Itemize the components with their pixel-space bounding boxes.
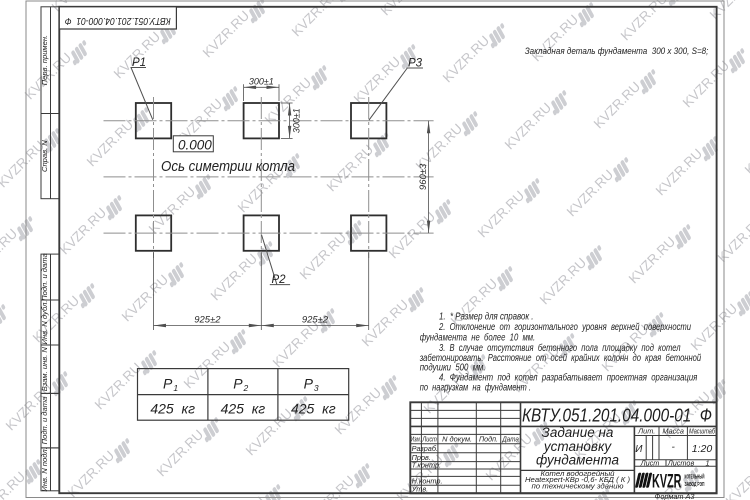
svg-text:KVZR.RU: KVZR.RU — [742, 125, 750, 178]
svg-text:KVZR.RU: KVZR.RU — [84, 117, 137, 170]
svg-text:425 кг: 425 кг — [221, 401, 266, 417]
svg-text:Взам. инв. N: Взам. инв. N — [40, 347, 49, 392]
svg-text:KVZR.RU: KVZR.RU — [208, 251, 261, 304]
svg-text:P2: P2 — [272, 274, 287, 286]
svg-text:KVZR.RU: KVZR.RU — [502, 100, 555, 153]
svg-text:-: - — [672, 442, 676, 453]
svg-text:KVZR.RU: KVZR.RU — [0, 469, 28, 500]
svg-text:P1: P1 — [132, 57, 146, 69]
svg-text:Закладная деталь фундамента 3: Закладная деталь фундамента 300 x 300, S… — [525, 46, 709, 57]
svg-text:P: P — [304, 376, 314, 392]
svg-text:Лист: Лист — [422, 435, 437, 444]
svg-text:Подп. и дата: Подп. и дата — [40, 397, 49, 445]
svg-text:0.000: 0.000 — [178, 137, 212, 152]
svg-text:925±2: 925±2 — [302, 315, 329, 326]
svg-text:Формат А3: Формат А3 — [655, 492, 695, 500]
svg-text:КВТУ.051.201.04.000-01 Ф: КВТУ.051.201.04.000-01 Ф — [65, 15, 171, 27]
svg-text:1:20: 1:20 — [692, 443, 713, 455]
svg-text:KVZR.RU: KVZR.RU — [181, 339, 234, 392]
svg-text:KVZR.RU: KVZR.RU — [200, 8, 253, 61]
svg-text:KVZR.RU: KVZR.RU — [154, 427, 207, 480]
svg-text:Ось симетрии котла: Ось симетрии котла — [161, 159, 295, 175]
svg-text:Утв.: Утв. — [411, 484, 429, 493]
svg-text:KVZR.RU: KVZR.RU — [0, 0, 12, 35]
svg-text:KVZR.RU: KVZR.RU — [564, 167, 617, 220]
svg-text:KVZR.RU: KVZR.RU — [30, 293, 83, 346]
svg-text:KVZR.RU: KVZR.RU — [723, 456, 750, 500]
svg-text:KVZR.RU: KVZR.RU — [591, 79, 644, 132]
svg-text:КВТУ.051.201.04.000-01 Ф: КВТУ.051.201.04.000-01 Ф — [522, 405, 712, 426]
svg-text:KVZR.RU: KVZR.RU — [92, 360, 145, 413]
svg-text:KVZR.RU: KVZR.RU — [378, 0, 431, 18]
svg-text:KVZR.RU: KVZR.RU — [65, 448, 118, 500]
svg-text:300±1: 300±1 — [249, 77, 274, 87]
svg-text:KVZR.RU: KVZR.RU — [386, 209, 439, 262]
svg-text:Подп.: Подп. — [479, 435, 498, 444]
svg-text:P3: P3 — [408, 58, 423, 70]
svg-text:KVZR.RU: KVZR.RU — [653, 146, 706, 199]
svg-text:KVZR.RU: KVZR.RU — [475, 188, 528, 241]
svg-text:KVZR.RU: KVZR.RU — [305, 473, 358, 500]
svg-text:KVZR.RU: KVZR.RU — [688, 301, 741, 354]
svg-text:425 кг: 425 кг — [150, 401, 195, 417]
svg-text:фундамента: фундамента — [536, 453, 619, 468]
svg-text:KVZR.RU: KVZR.RU — [332, 385, 385, 438]
svg-text:Лит.: Лит. — [637, 426, 655, 435]
svg-text:KVZR.RU: KVZR.RU — [119, 272, 172, 325]
svg-text:KVZR.RU: KVZR.RU — [440, 33, 493, 86]
svg-text:Перв. примен.: Перв. примен. — [40, 35, 49, 85]
svg-text:ЗАВОД РЭП: ЗАВОД РЭП — [685, 482, 705, 488]
svg-text:3: 3 — [314, 383, 319, 393]
svg-text:N докум.: N докум. — [442, 435, 472, 444]
svg-text:И: И — [635, 444, 643, 455]
svg-text:Т.контр.: Т.контр. — [412, 460, 441, 469]
svg-text:KVZR.RU: KVZR.RU — [537, 255, 590, 308]
svg-text:1: 1 — [173, 383, 178, 393]
svg-text:фундамента не более 10 мм.: фундамента не более 10 мм. — [420, 332, 536, 344]
svg-text:P: P — [233, 376, 243, 392]
svg-text:Инв. N подл.: Инв. N подл. — [40, 447, 49, 491]
svg-text:по техническому зданию: по техническому зданию — [532, 482, 624, 491]
svg-text:1: 1 — [705, 458, 709, 467]
svg-text:KVZR.RU: KVZR.RU — [707, 0, 750, 22]
svg-text:Масса: Масса — [662, 426, 684, 435]
svg-text:1. * Размер для справок .: 1. * Размер для справок . — [439, 311, 534, 322]
svg-text:KVZR.RU: KVZR.RU — [111, 29, 164, 82]
svg-text:Подп. и дата: Подп. и дата — [40, 253, 49, 301]
svg-text:Лист: Лист — [640, 458, 660, 467]
svg-text:Листов: Листов — [667, 458, 695, 467]
svg-text:425 кг: 425 кг — [291, 401, 336, 417]
svg-text:КОТЕЛЬНЫЙ: КОТЕЛЬНЫЙ — [685, 473, 705, 481]
svg-text:KVZR.RU: KVZR.RU — [351, 54, 404, 107]
svg-text:Масштаб: Масштаб — [689, 426, 716, 435]
svg-text:KVZR.RU: KVZR.RU — [715, 213, 750, 266]
svg-text:KVZR.RU: KVZR.RU — [57, 205, 110, 258]
svg-text:KVZR.RU: KVZR.RU — [216, 494, 269, 500]
svg-text:Дата: Дата — [501, 435, 518, 444]
svg-text:P: P — [163, 376, 173, 392]
svg-text:960±3: 960±3 — [418, 163, 429, 190]
svg-text:925±2: 925±2 — [194, 315, 221, 326]
svg-text:300±1: 300±1 — [291, 108, 301, 133]
svg-text:Изм.: Изм. — [411, 435, 422, 444]
svg-text:установку: установку — [543, 439, 612, 454]
svg-text:KVZR.RU: KVZR.RU — [626, 234, 679, 287]
svg-text:2. Отклонение от горизонтал: 2. Отклонение от горизонтального уровня … — [438, 322, 691, 333]
svg-text:KVZR.RU: KVZR.RU — [0, 226, 20, 279]
svg-text:2: 2 — [243, 383, 249, 393]
svg-text:Разраб.: Разраб. — [412, 444, 438, 453]
svg-text:KVZR.RU: KVZR.RU — [297, 230, 350, 283]
svg-text:KVZR: KVZR — [652, 471, 682, 493]
svg-text:KVZR.RU: KVZR.RU — [359, 297, 412, 350]
svg-text:Справ. N: Справ. N — [40, 140, 49, 172]
svg-text:Инв. N дубл.: Инв. N дубл. — [40, 301, 49, 345]
svg-text:по нагрузкам на фундамент .: по нагрузкам на фундамент . — [420, 382, 531, 394]
